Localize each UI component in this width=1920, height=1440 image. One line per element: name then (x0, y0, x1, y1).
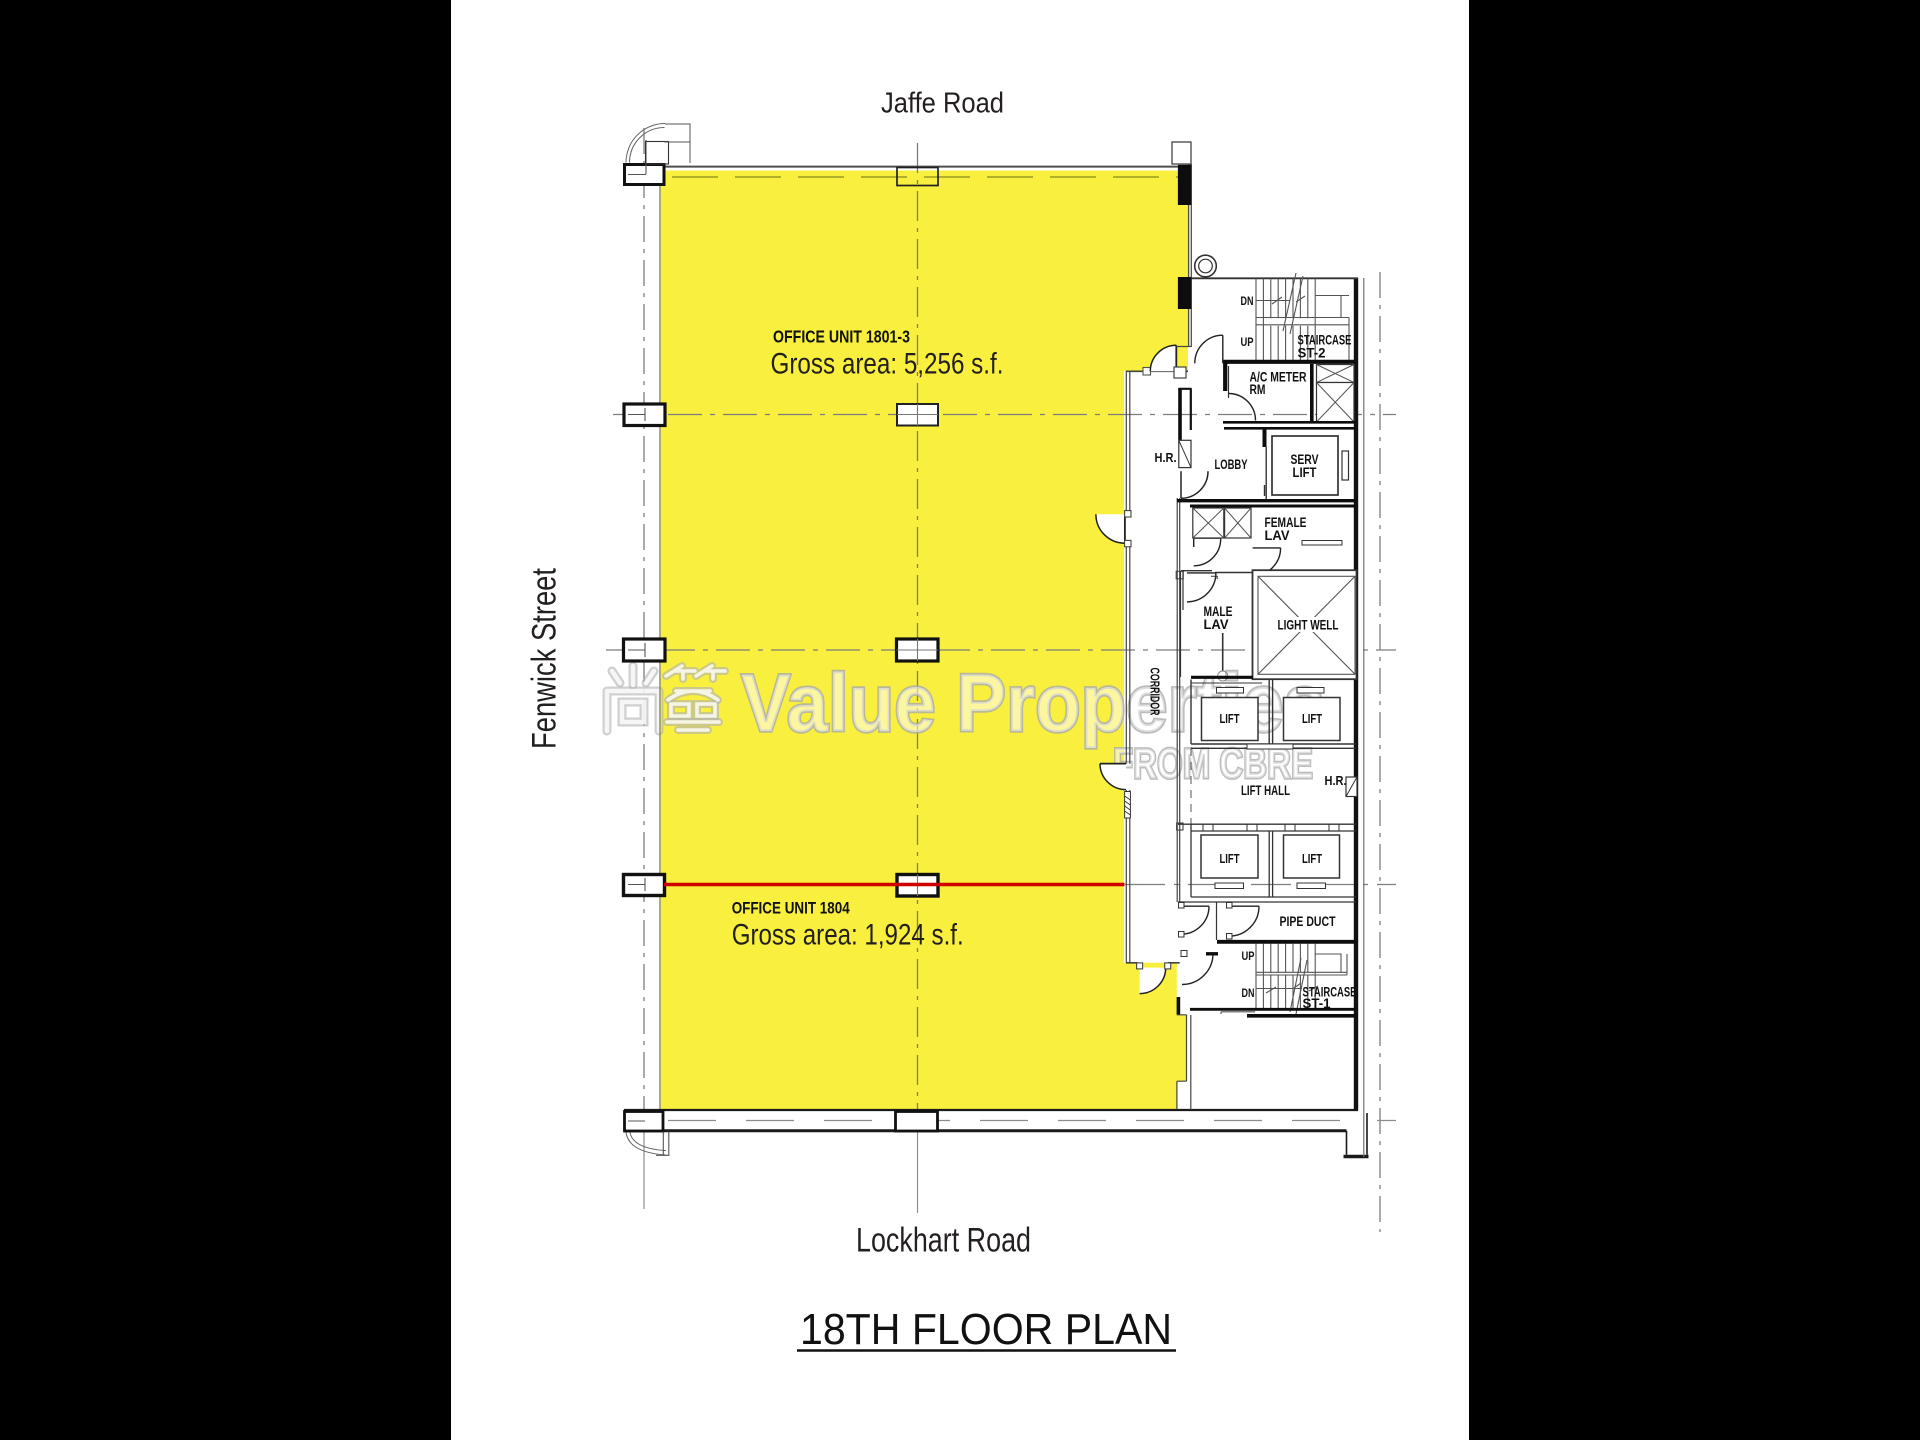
svg-text:LAV: LAV (1204, 617, 1229, 632)
svg-text:18TH FLOOR PLAN: 18TH FLOOR PLAN (800, 1305, 1172, 1354)
svg-text:Fenwick Street: Fenwick Street (526, 568, 564, 749)
svg-text:Lockhart Road: Lockhart Road (856, 1222, 1031, 1260)
svg-text:UP: UP (1241, 337, 1254, 349)
svg-text:PIPE DUCT: PIPE DUCT (1280, 914, 1337, 929)
svg-text:LIFT: LIFT (1220, 851, 1240, 866)
svg-text:LIFT: LIFT (1220, 711, 1240, 726)
svg-text:LIFT: LIFT (1302, 711, 1322, 726)
svg-text:CORRIDOR: CORRIDOR (1148, 668, 1162, 716)
svg-text:LIGHT WELL: LIGHT WELL (1278, 618, 1339, 633)
svg-text:DN: DN (1241, 296, 1254, 308)
svg-text:Gross area: 1,924 s.f.: Gross area: 1,924 s.f. (732, 919, 964, 952)
svg-text:OFFICE UNIT 1804: OFFICE UNIT 1804 (732, 900, 851, 918)
svg-text:RM: RM (1250, 382, 1266, 397)
svg-text:LIFT: LIFT (1302, 851, 1322, 866)
svg-text:Gross area: 5,256 s.f.: Gross area: 5,256 s.f. (771, 348, 1004, 381)
svg-text:H.R.: H.R. (1325, 773, 1347, 788)
svg-text:H.R.: H.R. (1155, 450, 1177, 465)
svg-text:LIFT: LIFT (1293, 465, 1318, 480)
svg-text:ST-2: ST-2 (1298, 346, 1326, 361)
svg-text:LIFT HALL: LIFT HALL (1241, 782, 1290, 798)
svg-text:UP: UP (1242, 951, 1255, 963)
svg-text:LOBBY: LOBBY (1215, 456, 1248, 472)
svg-text:LAV: LAV (1265, 528, 1290, 543)
svg-text:DN: DN (1242, 988, 1255, 1000)
svg-text:OFFICE UNIT 1801-3: OFFICE UNIT 1801-3 (773, 327, 910, 347)
svg-text:Jaffe Road: Jaffe Road (881, 88, 1004, 120)
